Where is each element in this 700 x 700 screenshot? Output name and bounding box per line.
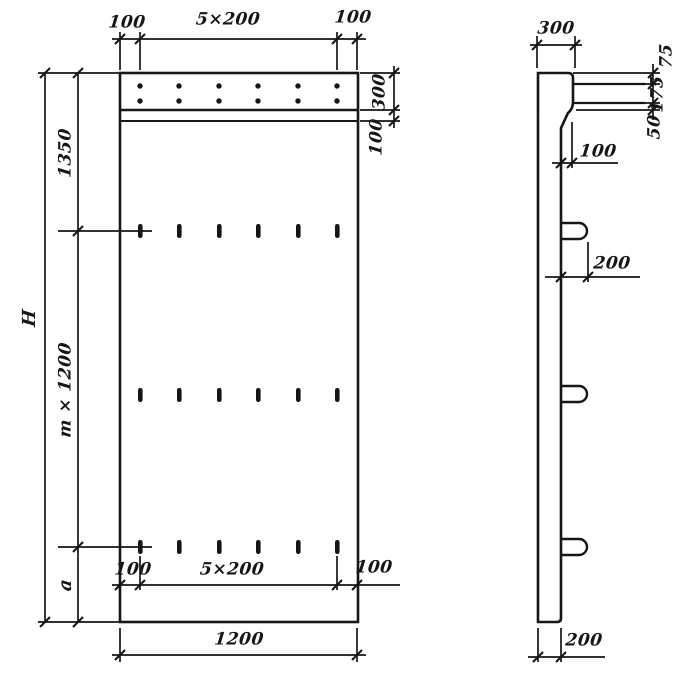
- dim-label-strip-300: 300: [372, 73, 389, 112]
- dim-label-side-175: 175: [650, 75, 667, 114]
- dim-label-1200: 1200: [213, 632, 264, 649]
- dim-label-a: a: [57, 578, 75, 592]
- dim-label-hook-200: 200: [593, 256, 632, 273]
- dim-label-side-100: 100: [579, 144, 618, 161]
- dim-label-top-left-100: 100: [108, 15, 147, 32]
- side-shelf-lines: [573, 84, 645, 103]
- dim-label-top-5x200: 5×200: [195, 12, 261, 29]
- dim-label-band-100: 100: [369, 118, 386, 157]
- dim-label-thickness-200: 200: [565, 633, 604, 650]
- dim-label-overall-H: H: [21, 308, 39, 327]
- drawing-linework: [0, 0, 700, 700]
- dim-label-bottom-5x200: 5×200: [199, 562, 265, 579]
- dim-label-1350: 1350: [58, 127, 75, 178]
- dim-label-side-300: 300: [537, 21, 576, 38]
- dim-label-bottom-right-100: 100: [355, 560, 394, 577]
- engineering-drawing: 100 5×200 100 300 100 H 1350 m × 1200 a …: [0, 0, 700, 700]
- dim-label-top-right-100: 100: [334, 10, 373, 27]
- dowel-dots: [137, 83, 339, 103]
- dim-label-side-75: 75: [659, 43, 676, 69]
- slot-marks: [138, 224, 340, 554]
- dim-label-side-50: 50: [647, 114, 664, 140]
- dim-label-bottom-left-100: 100: [114, 562, 153, 579]
- dim-label-mx1200: m × 1200: [58, 341, 75, 438]
- front-view-panel: [120, 73, 358, 622]
